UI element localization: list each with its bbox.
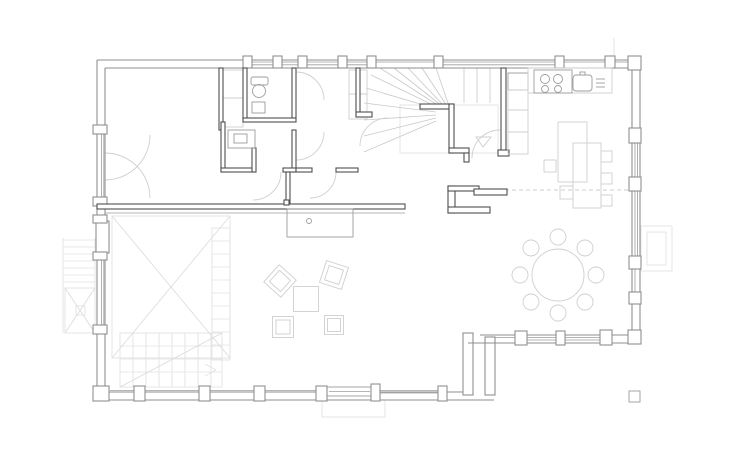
cooktop-burner (542, 86, 549, 93)
floor-plan-viewport (0, 0, 736, 460)
round-table-chair (577, 240, 593, 256)
door-swing (105, 135, 150, 180)
wall-pier (93, 215, 107, 223)
dining-chair (601, 195, 612, 206)
partition-wall (219, 68, 223, 130)
partition-wall (292, 130, 296, 172)
kitchen-wall-foot (498, 150, 509, 156)
door-swing (310, 172, 336, 198)
partition-wall (243, 68, 247, 120)
round-table-chair (550, 305, 566, 321)
lower-stair-diagonal (120, 333, 222, 387)
wall-pier (243, 56, 252, 68)
step-wall (485, 337, 495, 395)
door-swing (472, 130, 500, 158)
desk-grommet (307, 219, 312, 224)
round-table (532, 249, 584, 301)
wall-pier (316, 386, 327, 401)
partition-wall (336, 168, 358, 172)
stair-direction-marker (476, 137, 491, 147)
floor-cushion (320, 261, 349, 290)
wall-pier (298, 56, 307, 68)
floor-plan (0, 0, 736, 460)
wall-pier (600, 330, 612, 345)
wall-pier (93, 325, 107, 334)
stair-guard-wall (449, 148, 469, 153)
gallery-wall-post (284, 200, 289, 205)
wall-pier (629, 177, 641, 191)
wall-pier (629, 256, 641, 269)
partition-wall (296, 168, 312, 172)
door-swing (253, 172, 281, 200)
dining-chair (560, 186, 573, 199)
wall-pier (338, 56, 347, 68)
wall-pier (273, 56, 282, 68)
wall-pier (93, 252, 107, 260)
kitchen-sink (573, 75, 592, 91)
window-box-inner (647, 232, 666, 265)
door-swing (296, 132, 324, 160)
wall-pier (254, 386, 265, 401)
dining-chair (601, 173, 612, 184)
stair-tread (436, 68, 449, 106)
partition-wall (356, 112, 372, 117)
wall-pier (628, 56, 641, 70)
cooktop-burner (555, 86, 562, 93)
door-swing (105, 153, 150, 198)
round-table-chair (523, 294, 539, 310)
kitchen-base-cabinet (508, 90, 528, 154)
wall-pier (371, 384, 380, 401)
dining-chair (601, 151, 612, 162)
door-swing (360, 118, 388, 146)
toilet-cistern (251, 77, 268, 85)
wall-pier (556, 331, 565, 345)
kitchen-wall (501, 68, 506, 154)
gallery-wall (97, 204, 405, 209)
exterior-landing-post (76, 306, 85, 315)
wall-pier (438, 386, 447, 401)
partition-wall (283, 168, 296, 172)
dining-chair (544, 160, 556, 172)
kitchen-faucet (580, 72, 585, 75)
step-wall (463, 333, 473, 395)
stair-guard-wall (464, 153, 469, 162)
utility-counter (228, 130, 255, 148)
partition-wall (221, 122, 225, 172)
wall-pier (93, 386, 109, 401)
wall-pier (199, 386, 210, 401)
cooktop-burner (541, 75, 550, 84)
dining-table (558, 122, 587, 182)
kitchen-upper-cabinet (508, 73, 528, 90)
wall-pier (555, 56, 564, 68)
wall-pier (93, 125, 107, 134)
wall-pier (367, 56, 376, 68)
wall-pier (628, 330, 641, 344)
floor-cushion (325, 266, 344, 285)
partition-wall (356, 68, 360, 116)
partition-wall (292, 68, 296, 118)
wall-pier (605, 56, 615, 68)
bath-sink (252, 102, 265, 113)
round-table-chair (512, 267, 528, 283)
floor-cushion (264, 265, 296, 297)
wall-pier (515, 331, 527, 345)
stair-tread (371, 75, 437, 107)
direction-arrow (205, 364, 216, 376)
wall-pier (134, 386, 145, 401)
stair-tread (380, 68, 439, 106)
floor-cushion (294, 287, 319, 312)
split-level-step (448, 207, 490, 213)
column-marker (629, 391, 640, 402)
floor-cushion (276, 320, 290, 334)
round-table-chair (588, 267, 604, 283)
round-table-chair (577, 294, 593, 310)
stair-guard-wall (449, 104, 454, 153)
cooktop (534, 70, 572, 93)
toilet-bowl (253, 85, 266, 98)
partition-wall (252, 148, 256, 172)
wall-pier (629, 128, 641, 143)
split-level-step (474, 189, 507, 195)
window-box (641, 226, 672, 271)
door-swing (296, 72, 324, 100)
wall-pier (434, 56, 443, 68)
terrace-door-frame (96, 221, 109, 253)
exterior-step (322, 400, 385, 417)
floor-cushion (269, 270, 290, 291)
partition-wall (221, 168, 255, 172)
round-table-chair (523, 240, 539, 256)
utility-sink (234, 134, 247, 143)
cooktop-burner (554, 75, 563, 84)
wall-pier (629, 292, 641, 304)
partition-wall (243, 118, 296, 122)
floor-cushion (328, 319, 341, 332)
round-table-chair (550, 229, 566, 245)
